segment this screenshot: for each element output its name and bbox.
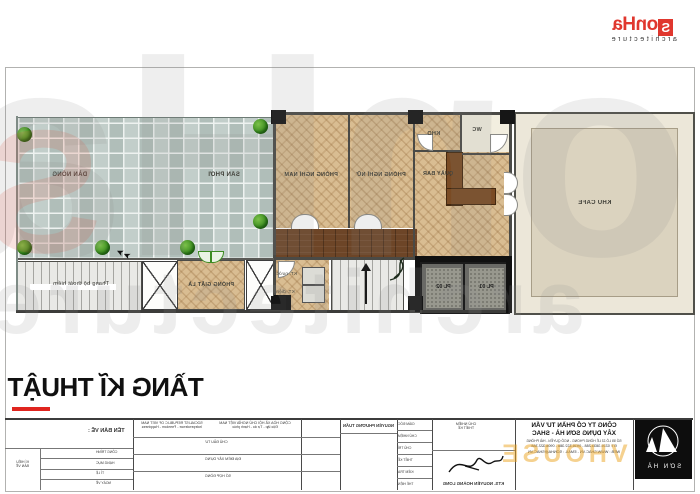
titleblock-line [397,454,432,455]
plant-symbol [388,254,414,282]
tree-icon [17,240,32,255]
elevator-pl02: PL 02 [420,262,467,314]
logo-wordmark: onHa [613,14,659,35]
titleblock-divider [432,419,433,490]
wall [413,115,415,258]
wall [273,112,276,312]
title-underline [12,407,50,411]
wall [460,114,462,152]
titleblock-line [40,469,133,470]
company-name-line2: XÂY DỰNG SƠN HÀ - SHAC [517,430,631,438]
company-logo-caption: SƠN HÀ [635,464,692,470]
stair-arrow-icon [361,263,371,271]
wall [415,150,462,152]
tree-icon [180,240,195,255]
bar-room [415,152,511,259]
room-label-khu-cafe: KHU CAFE [578,200,611,206]
titleblock-line [40,479,133,480]
titleblock-line [397,466,432,467]
column [408,296,423,310]
wall [16,116,18,312]
tech-shaft [142,261,178,310]
row-label: KIỂM TRA [398,470,430,474]
watermark-overlay-yellow: VHOUSE [498,440,628,469]
lift-wall [506,256,512,313]
stair-direction-line [365,270,367,304]
wall [273,112,513,115]
row-label: THỂ HIỆN [398,482,430,486]
wall [18,258,274,260]
elevator-label: PL 02 [422,284,465,290]
bar-counter [446,188,496,205]
column [271,296,286,310]
room-label-dan-nong: DÀN NÓNG [52,172,87,178]
kt-water-box [302,267,325,285]
row-label: CHỦ NHIỆM [398,434,430,438]
lift-wall [415,256,512,262]
motto-en: SOCIALIST REPUBLIC OF VIET NAMIndependen… [136,421,208,430]
titleblock-line [133,471,340,472]
row-label: ĐỊA ĐIỂM XÂY DỰNG [205,457,297,461]
row-label: CÔNG TRÌNH [96,450,130,454]
wall [16,310,512,313]
titleblock-line [5,448,133,449]
row-label: THIẾT KẾ [398,458,430,462]
row-label: CHỦ TRÌ [398,446,430,450]
tree-icon [253,119,268,134]
room-label-thang-bo: Thang bộ thoát hiểm [26,281,136,287]
row-label: GIÁM ĐỐC [398,422,430,426]
client-name: NGUYỄN PHƯƠNG TUẤN [341,423,396,428]
ten-ban-ve-label: TÊN BẢN VẼ : [88,428,125,434]
sign-header: CHỦ NHIỆMTHIẾT KẾ [436,422,496,431]
label-kt-dien: KT. điện [276,289,295,294]
room-label-nghi-nam: PHÒNG NGHỈ NAM [276,172,346,178]
row-label: CHỦ ĐẦU TƯ [205,440,297,444]
titleblock-line [133,437,340,438]
titleblock-line [340,433,397,434]
sonha-logo: SonHa architecture [593,15,693,43]
titleblock-line [397,442,432,443]
column [408,110,423,124]
room-label-giat-la: PHÒNG GIẶT LÀ [179,282,243,288]
motto-vi: CỘNG HÒA XÃ HỘI CHỦ NGHĨA VIỆT NAMĐộc lậ… [212,421,298,430]
signature [445,452,505,478]
titleblock-line [133,454,340,455]
architect-name: KTS. NGUYỄN HOÀNG LONG [432,481,515,486]
tree-icon [253,214,268,229]
company-logo-glyph [644,424,684,458]
titleblock-divider [633,419,634,490]
ki-hieu-label: KÍ HIỆUBẢN VẼ [7,460,38,468]
titleblock-line [397,478,432,479]
logo-subtext: architecture [593,36,693,43]
column [500,110,515,124]
room-label-quay-bar: QUẦY BAR [416,171,460,177]
column [271,110,286,124]
cafe-inner-zone [531,128,678,297]
company-logo-box: SƠN HÀ [635,420,692,479]
room-label-nghi-nu: PHÒNG NGHỈ NỮ [350,172,412,178]
elevator-pl01: PL 01 [463,262,510,314]
row-label: TỈ LỆ [96,471,130,475]
company-name-line1: CÔNG TY CỔ PHẦN TƯ VẤN [517,422,631,430]
titleblock-divider [340,419,341,490]
room-label-san-phoi: SÂN PHƠI [208,172,240,178]
titleblock-line [40,458,133,459]
titleblock-line [397,430,432,431]
tree-icon [95,240,110,255]
drawing-sheet: SonHa architecture S VHOUSE SonHa archit… [0,0,700,494]
row-label: HẠNG MỤC [96,461,130,465]
kt-electric-box [302,285,325,303]
row-label: NGÀY VẼ [96,481,130,485]
sheet-title: TẦNG KĨ THUẬT [8,372,204,403]
label-kt-nuoc: KT. nước [276,271,297,276]
row-label: SỐ HỢP ĐỒNG [205,474,297,478]
logo-s-block: S [658,19,673,36]
room-label-kho: KHO [427,131,440,137]
elevator-label: PL 01 [465,284,508,290]
tree-icon [17,127,32,142]
wall [462,153,510,155]
courtyard-grid [18,118,273,259]
titleblock-topline [5,418,693,420]
room-label-wc: WC [472,127,482,133]
